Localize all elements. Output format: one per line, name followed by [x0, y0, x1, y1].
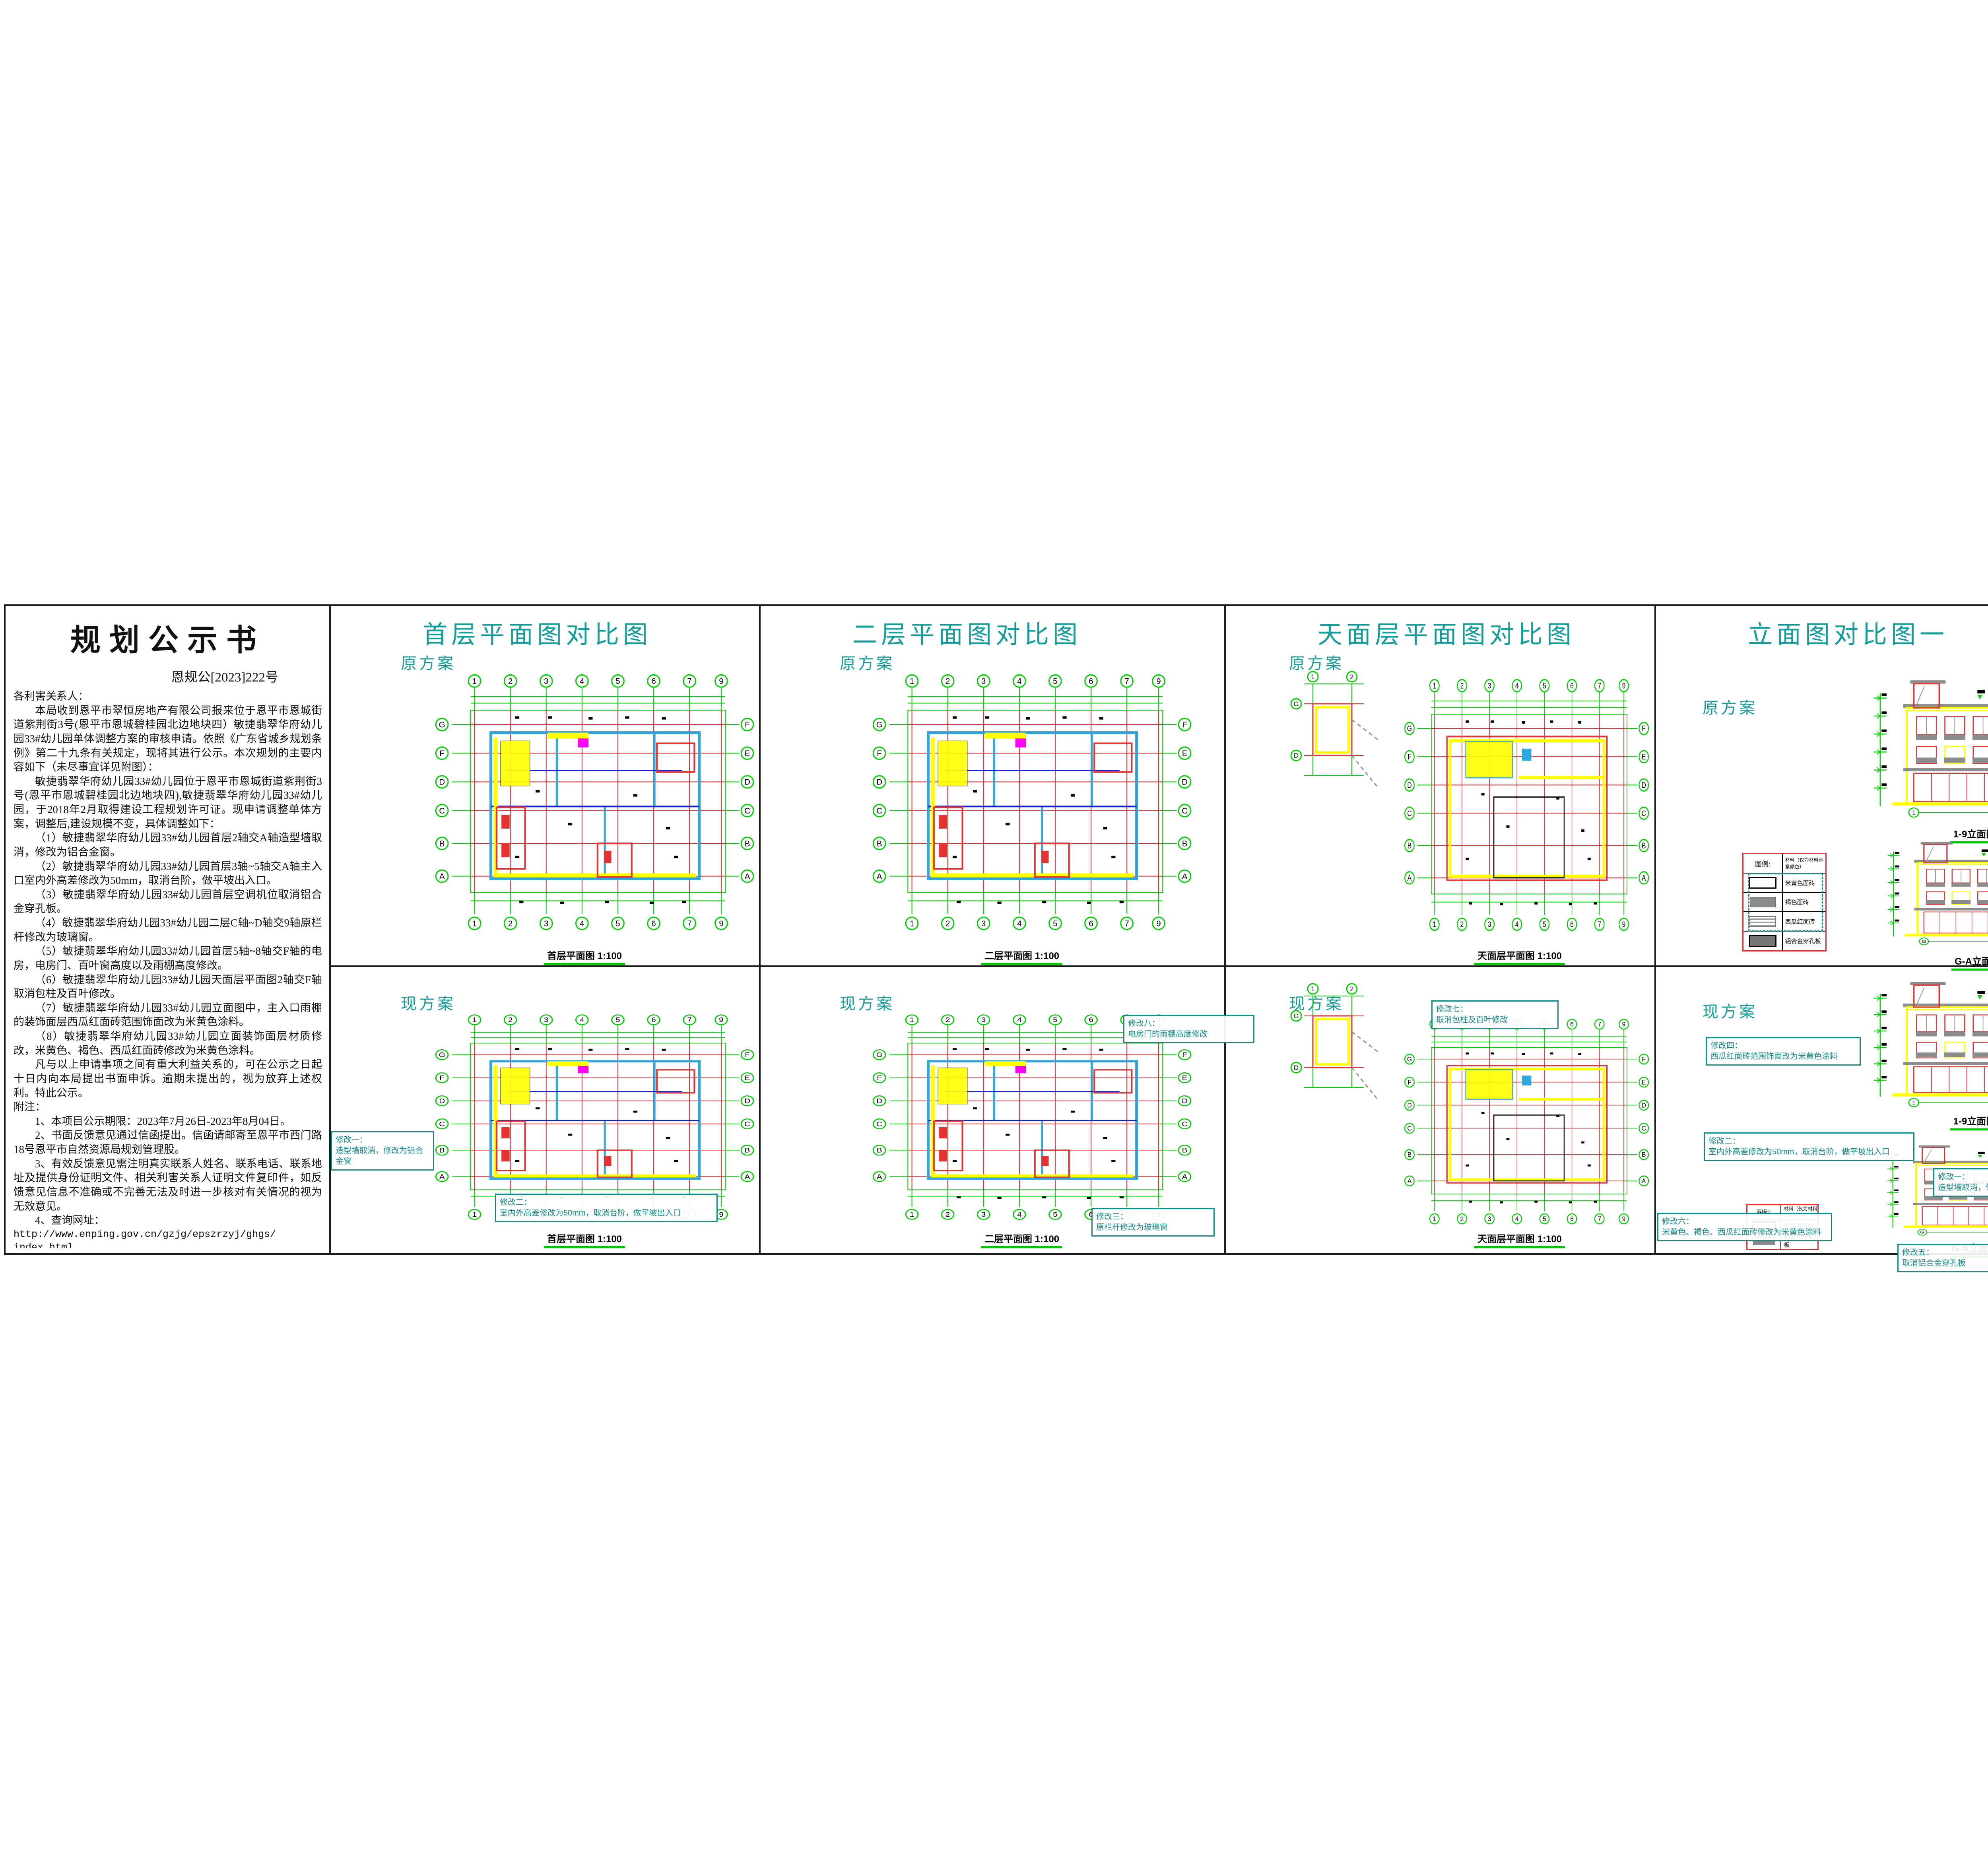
axis-number-label: 3	[981, 919, 986, 928]
axis-letter-label: F	[1408, 1079, 1411, 1086]
document-item: （5）敏捷翡翠华府幼儿园33#幼儿园首层5轴~8轴交F轴的电房，电房门、百叶窗高…	[14, 944, 322, 973]
callout-text: 原栏杆修改为玻璃窗	[1096, 1223, 1168, 1232]
axis-letter-label: D	[439, 778, 445, 787]
axis-letter-label: A	[1408, 874, 1412, 882]
axis-letter-label: A	[877, 1173, 882, 1180]
svg-text:2: 2	[1350, 985, 1353, 993]
axis-letter-label: F	[1182, 1051, 1187, 1058]
modification-callout: 修改六：米黄色、褐色、西瓜红面砖修改为米黄色涂料	[1657, 1213, 1832, 1241]
axis-number-label: 3	[1488, 681, 1491, 690]
axis-letter-label: A	[745, 872, 750, 881]
axis-letter-label: B	[745, 1146, 750, 1154]
axis-letter-label: C	[1182, 1120, 1188, 1128]
document-notes-label: 附注：	[14, 1100, 322, 1114]
floor-plan-drawing: 1 2 3 4 5 6 7 9 1 2 3 4 5 6 7 9 G F D C …	[414, 671, 755, 934]
legend-swatch-cell	[1743, 893, 1783, 912]
document-item: （3）敏捷翡翠华府幼儿园33#幼儿园首层空调机位取消铝合金穿孔板。	[14, 888, 322, 916]
axis-number-label: 4	[580, 677, 584, 686]
axis-number-label: 6	[651, 677, 656, 686]
axis-letter-label: C	[439, 1120, 445, 1128]
legend-row: 米黄色面砖	[1743, 873, 1825, 892]
axis-number-label: 5	[1543, 1215, 1546, 1223]
document-closing: 凡与以上申请事项之间有重大利益关系的，可在公示之日起十日内向本局提出书面申诉。逾…	[14, 1058, 322, 1100]
drawing-caption: 天面层平面图 1:100	[1474, 1231, 1565, 1248]
axis-number-label: 1	[472, 1211, 477, 1218]
axis-letter-label: G	[439, 720, 445, 729]
axis-letter-label: G	[1407, 1056, 1412, 1063]
legend-material-label: 西瓜红面砖	[1783, 912, 1825, 931]
panel-divider	[759, 604, 761, 1255]
callout-number: 修改四：	[1710, 1041, 1856, 1051]
axis-letter-label: C	[744, 1120, 750, 1128]
elevation-axis-label: G	[1922, 939, 1926, 944]
axis-number-label: 7	[687, 919, 691, 928]
document-note: 1、本项目公示期限：2023年7月26日-2023年8月04日。	[14, 1114, 322, 1129]
floor-plan-drawing: 1 2 3 4 5 6 7 9 1 2 3 4 5 6 7 9 G F D C …	[414, 1012, 755, 1223]
axis-number-label: 3	[544, 919, 548, 928]
elevation-drawing: 1 9	[1861, 675, 1988, 819]
document-url: index.html。	[14, 1241, 322, 1248]
drawing-caption: G-A立面图 1:100	[1951, 953, 1988, 971]
axis-letter-label: C	[1407, 1125, 1412, 1132]
axis-number-label: 7	[1598, 1021, 1601, 1028]
axis-letter-label: G	[439, 1051, 445, 1058]
axis-number-label: 3	[981, 677, 986, 686]
axis-number-label: 4	[1017, 919, 1021, 928]
axis-number-label: 2	[945, 919, 950, 928]
axis-number-label: 6	[1089, 1016, 1093, 1024]
callout-number: 修改七：	[1436, 1004, 1554, 1015]
legend-swatch-dark	[1749, 935, 1776, 947]
legend-header-row: 图例:材料（仅为材料示意颜色）	[1743, 854, 1825, 873]
axis-letter-label: B	[877, 1146, 882, 1154]
axis-letter-label: D	[1407, 781, 1411, 789]
axis-letter-label: B	[1182, 1146, 1188, 1154]
axis-number-label: 5	[1053, 919, 1057, 928]
axis-number-label: 3	[981, 1211, 986, 1218]
axis-letter-label: E	[745, 749, 750, 758]
axis-letter-label: D	[876, 778, 882, 787]
callout-number: 修改二：	[1708, 1136, 1910, 1147]
axis-number-label: 1	[472, 677, 477, 686]
axis-letter-label: B	[1182, 839, 1188, 848]
drawing-caption: 二层平面图 1:100	[981, 948, 1062, 965]
floor-plan-container: 1 2 3 4 5 6 7 9 1 2 3 4 5 6 7 9 G F D C …	[414, 671, 755, 934]
svg-text:D: D	[1294, 752, 1299, 759]
callout-text: 西瓜红面砖范围饰面改为米黄色涂料	[1710, 1052, 1838, 1061]
legend-row: 西瓜红面砖	[1743, 911, 1825, 931]
axis-number-label: 6	[651, 1016, 656, 1024]
axis-letter-label: A	[439, 872, 445, 881]
floor-plan-container: 1 2 3 4 5 6 7 9 1 2 3 4 5 6 7 9 G F D C …	[414, 1012, 755, 1223]
axis-letter-label: E	[1182, 749, 1188, 758]
axis-number-label: 4	[580, 919, 584, 928]
axis-letter-label: F	[439, 749, 445, 758]
axis-letter-label: B	[877, 839, 882, 848]
axis-letter-label: E	[745, 1074, 750, 1081]
original-scheme-label: 原方案	[1703, 695, 1757, 718]
elevation-drawing: G A	[1876, 838, 1988, 946]
axis-letter-label: G	[1407, 724, 1412, 733]
document-item: （7）敏捷翡翠华府幼儿园33#幼儿园立面图中，主入口雨棚的装饰面层西瓜红面砖范围…	[14, 1001, 322, 1029]
axis-number-label: 1	[1433, 681, 1436, 690]
axis-letter-label: D	[744, 778, 750, 787]
panel-title-1: 二层平面图对比图	[852, 614, 1081, 650]
legend-swatch-gray	[1750, 897, 1776, 907]
svg-text:D: D	[1294, 1064, 1299, 1072]
svg-text:G: G	[1293, 700, 1299, 708]
axis-number-label: 9	[719, 1016, 723, 1024]
legend-material-label: 米黄色面砖	[1783, 874, 1825, 892]
roof-detail-plan-drawing: 1 2 G D	[1288, 668, 1378, 791]
axis-number-label: 9	[1622, 1215, 1626, 1223]
document-item: （8）敏捷翡翠华府幼儿园33#幼儿园立面装饰面层材质修改，米黄色、褐色、西瓜红面…	[14, 1029, 322, 1058]
svg-text:2: 2	[1350, 673, 1353, 681]
callout-number: 修改一：	[1938, 1172, 1988, 1182]
roof-detail-container: 1 2 G D	[1288, 668, 1378, 791]
callout-number: 修改五：	[1902, 1247, 1988, 1258]
document-item: （4）敏捷翡翠华府幼儿园33#幼儿园二层C轴~D轴交9轴原栏杆修改为玻璃窗。	[14, 916, 322, 944]
axis-letter-label: C	[1642, 809, 1646, 818]
callout-number: 修改三：	[1096, 1212, 1210, 1222]
axis-letter-label: F	[745, 1051, 750, 1058]
axis-letter-label: E	[1642, 1079, 1646, 1086]
roof-plan-drawing: 1 2 3 4 5 6 7 9 1 2 3 4 5 6 7 9 G F D C …	[1388, 1016, 1650, 1227]
axis-letter-label: D	[1642, 781, 1646, 789]
legend-row: 褐色面砖	[1743, 892, 1825, 912]
floor-plan-container: 1 2 3 4 5 6 7 9 1 2 3 4 5 6 7 9 G F D C …	[851, 1012, 1193, 1223]
axis-number-label: 9	[1622, 681, 1626, 690]
legend-header-material: 材料（仅为材料示意颜色）	[1783, 854, 1825, 873]
axis-number-label: 1	[1433, 920, 1436, 929]
axis-number-label: 4	[1515, 1215, 1519, 1223]
axis-number-label: 2	[1460, 681, 1464, 690]
axis-number-label: 2	[508, 1016, 513, 1024]
axis-letter-label: C	[876, 1120, 882, 1128]
axis-letter-label: B	[439, 1146, 445, 1154]
legend-swatch-cell	[1743, 912, 1783, 931]
axis-number-label: 9	[719, 919, 723, 928]
axis-number-label: 6	[1570, 1215, 1574, 1223]
axis-number-label: 1	[1433, 1215, 1436, 1223]
current-scheme-label: 现方案	[1703, 999, 1757, 1022]
modification-callout: 修改二：室内外高差修改为50mm，取消台阶，做平坡出入口	[1704, 1132, 1914, 1161]
axis-number-label: 4	[1515, 920, 1519, 929]
drawing-caption: 二层平面图 1:100	[981, 1231, 1062, 1248]
axis-number-label: 1	[472, 919, 477, 928]
modification-callout: 修改一：造型墙取消，修改为铝合金窗	[1933, 1168, 1988, 1197]
axis-number-label: 7	[687, 677, 691, 686]
panel-title-2: 天面层平面图对比图	[1318, 614, 1575, 650]
callout-number: 修改六：	[1662, 1216, 1827, 1227]
axis-number-label: 5	[615, 677, 620, 686]
document-number: 恩规公[2023]222号	[14, 666, 322, 685]
drawing-caption: 1-9立面图 1:100	[1950, 1113, 1988, 1130]
drawing-caption: 首层平面图 1:100	[544, 948, 625, 965]
original-scheme-label: 原方案	[840, 650, 895, 674]
axis-letter-label: A	[1642, 874, 1646, 882]
callout-text: 室内外高差修改为50mm，取消台阶，做平坡出入口	[500, 1209, 681, 1217]
axis-number-label: 4	[580, 1016, 584, 1024]
document-paragraph: 敏捷翡翠华府幼儿园33#幼儿园位于恩平市恩城街道紫荆街3号(恩平市恩城碧桂园北边…	[14, 775, 322, 831]
elevation-container: 1 9	[1861, 675, 1988, 819]
axis-number-label: 6	[1089, 677, 1093, 686]
axis-number-label: 7	[1598, 1215, 1601, 1223]
axis-number-label: 9	[719, 1211, 723, 1218]
legend-row: 铝合金穿孔板	[1743, 931, 1825, 950]
callout-text: 电房门的雨棚高度修改	[1128, 1030, 1208, 1039]
axis-letter-label: E	[1182, 1074, 1188, 1081]
legend-swatch-cell	[1743, 932, 1783, 950]
axis-letter-label: D	[439, 1097, 445, 1105]
axis-number-label: 9	[1156, 677, 1161, 686]
roof-plan-drawing: 1 2 3 4 5 6 7 9 1 2 3 4 5 6 7 9 G F D C …	[1388, 676, 1650, 934]
axis-letter-label: F	[1642, 724, 1646, 733]
axis-number-label: 1	[472, 1016, 477, 1024]
drawing-caption: 天面层平面图 1:100	[1474, 948, 1565, 965]
axis-letter-label: D	[1182, 1097, 1188, 1105]
modification-callout: 修改七：取消包柱及百叶修改	[1431, 1000, 1559, 1029]
current-scheme-label: 现方案	[401, 991, 456, 1014]
axis-letter-label: B	[1642, 841, 1646, 850]
axis-letter-label: F	[877, 749, 882, 758]
axis-letter-label: F	[439, 1074, 445, 1081]
axis-number-label: 9	[1156, 919, 1161, 928]
axis-number-label: 3	[981, 1016, 986, 1024]
axis-number-label: 5	[615, 919, 620, 928]
callout-text: 造型墙取消，修改为铝合金窗	[336, 1146, 423, 1166]
axis-number-label: 1	[910, 919, 914, 928]
axis-number-label: 2	[508, 677, 513, 686]
legend-material-label: 铝合金穿孔板	[1783, 932, 1825, 950]
document-body: 各利害关系人：本局收到恩平市翠恒房地产有限公司报来位于恩平市恩城街道紫荆街3号(…	[14, 689, 322, 1248]
elevation-axis-label: 1	[1912, 1100, 1916, 1106]
panel-divider	[1654, 604, 1656, 1255]
axis-number-label: 6	[651, 919, 656, 928]
material-legend-original: 图例:材料（仅为材料示意颜色）米黄色面砖褐色面砖西瓜红面砖铝合金穿孔板	[1742, 853, 1827, 951]
axis-number-label: 1	[910, 677, 914, 686]
planning-announcement-sheet: 规划公示书恩规公[2023]222号各利害关系人：本局收到恩平市翠恒房地产有限公…	[0, 0, 1988, 1860]
document-url: http://www.enping.gov.cn/gzjg/epszrzyj/g…	[14, 1228, 322, 1241]
axis-number-label: 6	[1089, 919, 1093, 928]
axis-number-label: 4	[1017, 677, 1021, 686]
axis-number-label: 9	[1622, 920, 1626, 929]
axis-letter-label: B	[1408, 1151, 1411, 1158]
axis-number-label: 7	[687, 1016, 691, 1024]
panel-title-0: 首层平面图对比图	[423, 614, 652, 650]
document-item: （2）敏捷翡翠华府幼儿园33#幼儿园首层3轴~5轴交A轴主入口室内外高差修改为5…	[14, 860, 322, 888]
axis-letter-label: B	[745, 839, 750, 848]
axis-number-label: 2	[945, 1211, 950, 1218]
modification-callout: 修改二：室内外高差修改为50mm，取消台阶，做平坡出入口	[495, 1194, 718, 1222]
callout-text: 造型墙取消，修改为铝合金窗	[1938, 1183, 1988, 1192]
modification-callout: 修改一：造型墙取消，修改为铝合金窗	[331, 1131, 434, 1171]
axis-number-label: 5	[1053, 677, 1057, 686]
document-paragraph: 本局收到恩平市翠恒房地产有限公司报来位于恩平市恩城街道紫荆街3号(恩平市恩城碧桂…	[14, 704, 322, 775]
axis-letter-label: D	[1407, 1102, 1411, 1109]
callout-text: 米黄色、褐色、西瓜红面砖修改为米黄色涂料	[1662, 1228, 1821, 1237]
axis-number-label: 2	[1460, 1215, 1464, 1223]
document-title: 规划公示书	[14, 615, 322, 659]
document-item: （6）敏捷翡翠华府幼儿园33#幼儿园天面层平面图2轴交F轴取消包柱及百叶修改。	[14, 973, 322, 1001]
panel-divider	[1224, 604, 1226, 1255]
axis-letter-label: A	[1182, 872, 1188, 881]
current-scheme-label: 现方案	[840, 991, 895, 1014]
axis-number-label: 6	[1570, 1021, 1574, 1028]
axis-letter-label: C	[439, 806, 445, 815]
roof-plan-container: 1 2 3 4 5 6 7 9 1 2 3 4 5 6 7 9 G F D C …	[1388, 676, 1650, 934]
axis-letter-label: C	[744, 806, 750, 815]
svg-text:G: G	[1293, 1012, 1299, 1020]
elevation-container: 1 9	[1861, 977, 1988, 1109]
axis-number-label: 2	[508, 919, 513, 928]
axis-number-label: 5	[1053, 1211, 1057, 1218]
axis-letter-label: A	[877, 872, 882, 881]
axis-number-label: 7	[1124, 677, 1129, 686]
axis-letter-label: G	[876, 720, 883, 729]
axis-letter-label: F	[1182, 720, 1187, 729]
document-note: 2、书面反馈意见通过信函提出。信函请邮寄至恩平市西门路18号恩平市自然资源局规划…	[14, 1128, 322, 1157]
axis-number-label: 2	[945, 677, 950, 686]
axis-number-label: 5	[1543, 920, 1546, 929]
elevation-axis-label: G	[1920, 1230, 1924, 1235]
roof-plan-container: 1 2 3 4 5 6 7 9 1 2 3 4 5 6 7 9 G F D C …	[1388, 1016, 1650, 1227]
axis-letter-label: B	[1408, 841, 1411, 850]
axis-number-label: 2	[945, 1016, 950, 1024]
svg-text:1: 1	[1311, 673, 1314, 681]
callout-number: 修改八：	[1128, 1018, 1250, 1029]
axis-letter-label: C	[876, 806, 882, 815]
drawing-caption: 首层平面图 1:100	[544, 1231, 625, 1248]
original-scheme-label: 原方案	[401, 650, 456, 674]
modification-callout: 修改八：电房门的雨棚高度修改	[1123, 1015, 1254, 1043]
announcement-document: 规划公示书恩规公[2023]222号各利害关系人：本局收到恩平市翠恒房地产有限公…	[14, 615, 322, 1248]
axis-number-label: 1	[910, 1016, 914, 1024]
modification-callout: 修改四：西瓜红面砖范围饰面改为米黄色涂料	[1706, 1037, 1861, 1066]
axis-number-label: 5	[1543, 681, 1546, 690]
axis-number-label: 4	[1017, 1016, 1021, 1024]
document-salutation: 各利害关系人：	[14, 689, 322, 704]
panel-title-3: 立面图对比图一	[1748, 614, 1948, 650]
axis-letter-label: F	[1642, 1056, 1646, 1063]
document-note: 3、有效反馈意见需注明真实联系人姓名、联系电话、联系地址及提供身份证明文件、相关…	[14, 1157, 322, 1214]
axis-number-label: 7	[1124, 919, 1129, 928]
axis-number-label: 6	[1570, 920, 1574, 929]
axis-letter-label: C	[1182, 806, 1188, 815]
axis-letter-label: G	[876, 1051, 883, 1058]
axis-letter-label: B	[439, 839, 445, 848]
row-divider	[329, 965, 1988, 967]
axis-number-label: 5	[615, 1016, 620, 1024]
axis-letter-label: C	[1407, 809, 1411, 818]
modification-callout: 修改三：原栏杆修改为玻璃窗	[1091, 1208, 1215, 1237]
axis-number-label: 9	[719, 677, 723, 686]
roof-detail-plan-drawing: 1 2 G D	[1288, 980, 1378, 1103]
axis-number-label: 3	[1488, 1215, 1491, 1223]
roof-detail-container: 1 2 G D	[1288, 980, 1378, 1103]
axis-letter-label: D	[876, 1097, 882, 1105]
legend-swatch-hatch	[1749, 916, 1776, 927]
axis-letter-label: A	[1642, 1177, 1646, 1184]
legend-swatch-cell	[1743, 874, 1783, 892]
axis-number-label: 7	[1598, 920, 1601, 929]
axis-letter-label: F	[745, 720, 750, 729]
axis-number-label: 9	[1622, 1021, 1626, 1028]
callout-text: 取消铝合金穿孔板	[1902, 1259, 1966, 1268]
callout-text: 取消包柱及百叶修改	[1436, 1015, 1508, 1024]
legend-swatch-white	[1749, 877, 1776, 889]
axis-number-label: 5	[1053, 1016, 1057, 1024]
callout-number: 修改二：	[500, 1197, 713, 1208]
document-note: 4、查询网址：	[14, 1213, 322, 1228]
axis-number-label: 3	[1488, 920, 1491, 929]
floor-plan-drawing: 1 2 3 4 5 6 7 9 1 2 3 4 5 6 7 9 G F D C …	[851, 1012, 1193, 1223]
axis-number-label: 7	[1598, 681, 1601, 690]
legend-header-symbol: 图例:	[1743, 854, 1783, 873]
document-item: （1）敏捷翡翠华府幼儿园33#幼儿园首层2轴交A轴造型墙取消，修改为铝合金窗。	[14, 831, 322, 859]
axis-letter-label: D	[744, 1097, 750, 1105]
callout-number: 修改一：	[336, 1135, 429, 1146]
axis-letter-label: E	[1642, 752, 1646, 761]
axis-number-label: 4	[1515, 681, 1519, 690]
axis-letter-label: C	[1642, 1125, 1646, 1132]
callout-text: 室内外高差修改为50mm，取消台阶，做平坡出入口	[1708, 1147, 1890, 1156]
axis-letter-label: A	[439, 1173, 445, 1180]
axis-number-label: 1	[910, 1211, 914, 1218]
axis-letter-label: A	[1182, 1173, 1188, 1180]
axis-number-label: 4	[1017, 1211, 1021, 1218]
axis-letter-label: F	[877, 1074, 882, 1081]
svg-text:1: 1	[1311, 985, 1314, 993]
axis-letter-label: B	[1642, 1151, 1646, 1158]
legend-material-label: 褐色面砖	[1783, 893, 1825, 912]
elevation-container: G A	[1876, 838, 1988, 946]
floor-plan-container: 1 2 3 4 5 6 7 9 1 2 3 4 5 6 7 9 G F D C …	[851, 671, 1193, 934]
axis-letter-label: F	[1408, 752, 1411, 761]
modification-callout: 修改五：取消铝合金穿孔板	[1897, 1244, 1988, 1272]
axis-letter-label: A	[1408, 1177, 1412, 1184]
elevation-axis-label: 1	[1912, 810, 1916, 816]
elevation-drawing: 1 9	[1861, 977, 1988, 1109]
axis-number-label: 3	[544, 677, 548, 686]
axis-number-label: 3	[544, 1016, 548, 1024]
axis-letter-label: D	[1642, 1102, 1646, 1109]
axis-number-label: 2	[1460, 920, 1464, 929]
axis-letter-label: D	[1182, 778, 1188, 787]
floor-plan-drawing: 1 2 3 4 5 6 7 9 1 2 3 4 5 6 7 9 G F D C …	[851, 671, 1193, 934]
axis-letter-label: A	[745, 1173, 750, 1180]
axis-number-label: 6	[1570, 681, 1574, 690]
